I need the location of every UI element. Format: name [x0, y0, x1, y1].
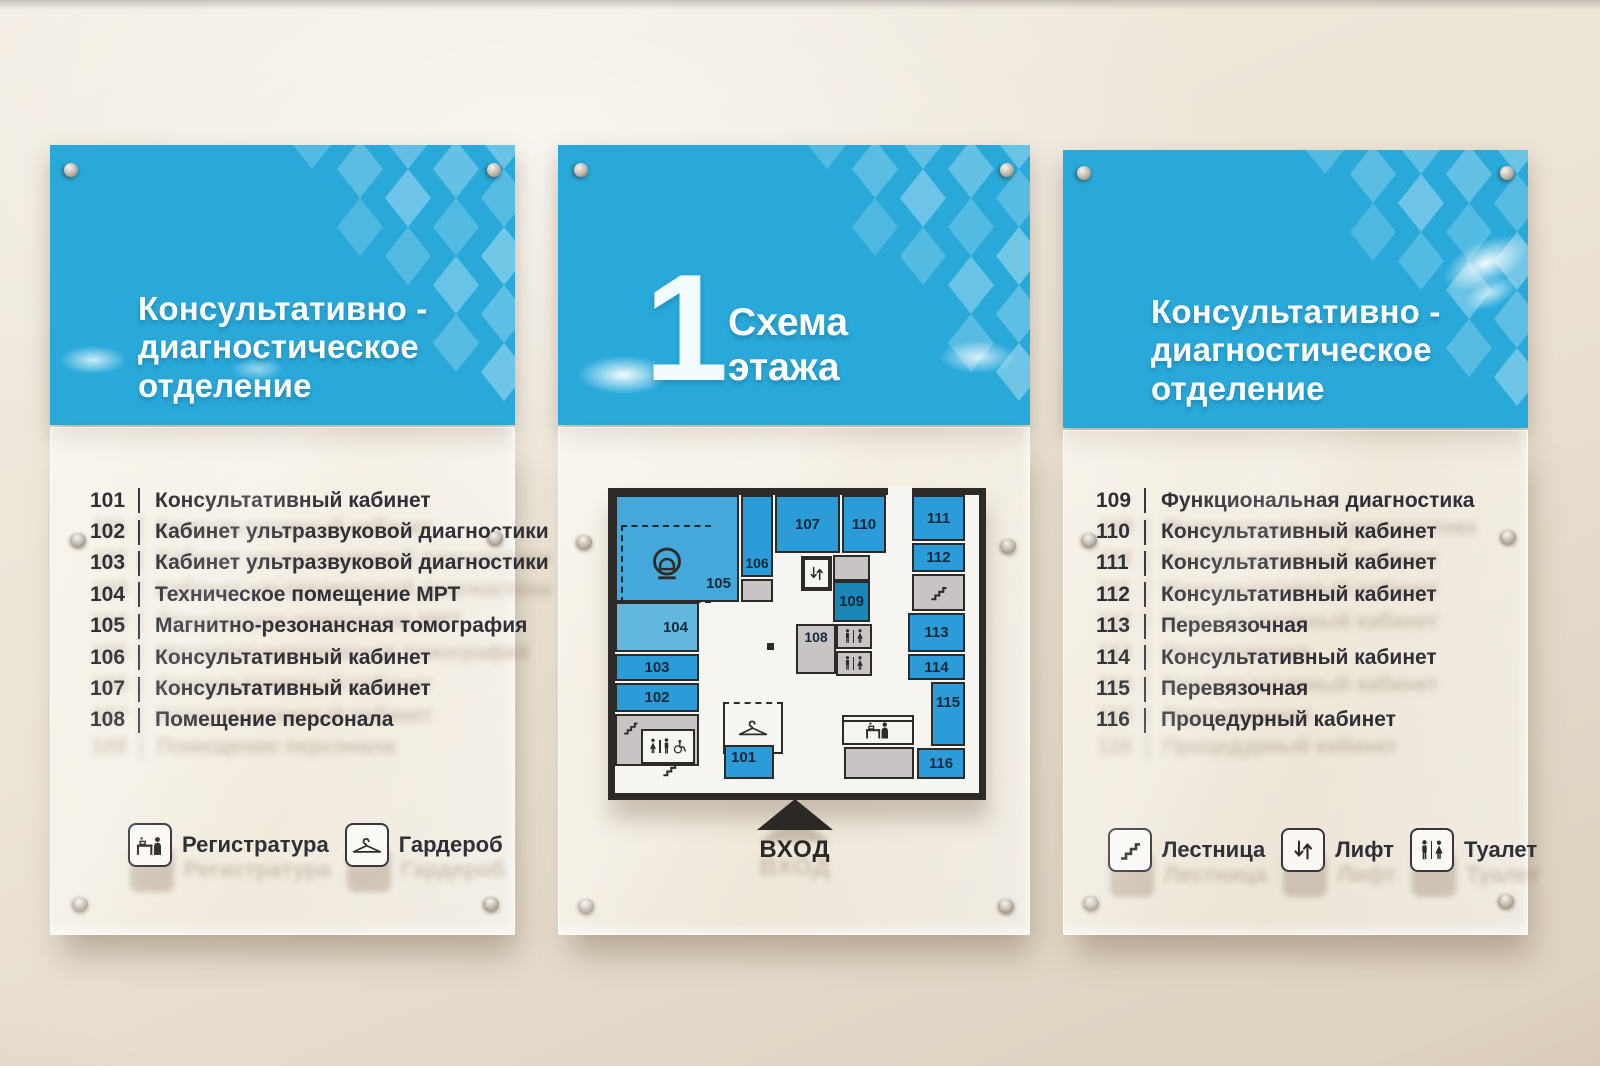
toilet-icon-box: [1410, 828, 1454, 872]
screw: [1002, 539, 1016, 553]
screw: [1502, 530, 1516, 544]
row-divider: [138, 614, 140, 639]
man-icon: [844, 629, 851, 644]
plan-room-label: 111: [927, 510, 950, 527]
woman-icon: [856, 629, 864, 644]
reception-icon-box: [128, 823, 172, 867]
left-legend: Регистратура Гардероб: [128, 823, 519, 867]
room-number: 109: [1096, 489, 1144, 513]
row-divider: [1144, 520, 1146, 545]
plan-room-109: 109: [833, 581, 870, 622]
plan-room-102: 102: [615, 683, 699, 712]
plan-room-label: 105: [706, 575, 731, 592]
room-number: 111: [1096, 551, 1144, 575]
lift-icon: [1291, 838, 1315, 862]
title-line: Схема: [728, 301, 848, 346]
plan-room-101: 101: [724, 745, 774, 779]
plan-room-106: 106: [741, 495, 773, 577]
list-row: 112Консультативный кабинет: [1096, 579, 1474, 610]
room-name: Консультативный кабинет: [1161, 551, 1437, 575]
floor-number: 1: [644, 259, 729, 399]
floor-plan-inner: 105 104 103 102 106 107: [615, 495, 979, 793]
plan-room-111: 111: [912, 495, 965, 541]
title-line: этажа: [728, 346, 848, 391]
reception-icon: [136, 833, 164, 858]
room-name: Магнитно-резонансная томография: [155, 614, 527, 638]
woman-icon: [649, 738, 657, 755]
stairs-icon: [1118, 838, 1142, 862]
mri-icon: [647, 544, 687, 584]
room-name: Кабинет ультразвуковой диагностики: [155, 551, 549, 575]
plan-room-114: 114: [908, 654, 965, 680]
lift-icon-box: [1281, 828, 1325, 872]
list-row: 102Кабинет ультразвуковой диагностики: [90, 516, 549, 547]
list-row: 101Консультативный кабинет: [90, 485, 549, 516]
row-divider: [138, 488, 140, 513]
plan-room-110: 110: [842, 495, 886, 553]
room-number: 115: [1096, 677, 1144, 701]
list-row: 116Процедурный кабинет: [1096, 705, 1474, 736]
room-name: Консультативный кабинет: [155, 646, 431, 670]
screw: [1500, 894, 1514, 908]
man-icon: [1420, 840, 1429, 861]
room-number: 104: [90, 583, 138, 607]
room-number: 108: [90, 708, 138, 732]
list-row: 107Консультативный кабинет: [90, 673, 549, 704]
title-line: Консультативно -: [138, 290, 428, 328]
screw: [485, 897, 499, 911]
plan-room-105: 105: [615, 495, 739, 602]
left-sign-glass: 101Консультативный кабинет 102Кабинет ул…: [50, 427, 515, 935]
plan-toilet: [836, 651, 872, 676]
hanger-icon: [737, 719, 769, 737]
plan-room-label: 101: [731, 749, 756, 766]
room-number: 106: [90, 646, 138, 670]
screw: [489, 531, 503, 545]
room-number: 113: [1096, 614, 1144, 638]
right-sign-glass: 109Функциональная диагностика 110Консуль…: [1063, 430, 1528, 935]
plan-room-label: 113: [924, 624, 948, 641]
plan-service-area: [833, 555, 870, 581]
room-number: 105: [90, 614, 138, 638]
divider: [853, 657, 855, 670]
title-line: отделение: [1151, 370, 1441, 408]
reception-icon: [865, 719, 891, 741]
room-number: 114: [1096, 646, 1144, 670]
room-name: Консультативный кабинет: [155, 677, 431, 701]
legend-label: Лестница: [1162, 837, 1265, 863]
title-line: Консультативно -: [1151, 293, 1441, 331]
plan-room-label: 102: [644, 689, 669, 706]
row-divider: [1144, 708, 1146, 733]
plan-room-115: 115: [931, 682, 965, 746]
divider: [659, 740, 661, 753]
plan-stairwell: [912, 574, 965, 611]
plan-room-107: 107: [775, 495, 840, 553]
divider: [853, 630, 855, 643]
entrance-label: ВХОД: [735, 836, 855, 864]
plan-reception: [842, 715, 914, 745]
plan-pillar: [767, 643, 774, 650]
screw: [1500, 166, 1514, 180]
plan-service-area-sw: [615, 714, 699, 766]
list-row: 111Консультативный кабинет: [1096, 548, 1474, 579]
floor-plan-title: Схема этажа: [728, 301, 848, 391]
plan-elevator: [801, 556, 832, 591]
right-sign-header: Консультативно - диагностическое отделен…: [1063, 150, 1528, 428]
left-sign-title: Консультативно - диагностическое отделен…: [138, 290, 428, 405]
screw: [487, 163, 501, 177]
plan-room-108: 108: [796, 624, 836, 674]
legend-label: Лифт: [1335, 837, 1394, 863]
plan-room-116: 116: [917, 748, 965, 779]
room-name: Помещение персонала: [155, 708, 393, 732]
title-line: диагностическое: [138, 328, 428, 366]
list-row: 108Помещение персонала: [90, 705, 549, 736]
row-divider: [138, 708, 140, 733]
light-glare: [58, 345, 128, 375]
woman-icon: [1434, 840, 1444, 861]
row-divider: [138, 520, 140, 545]
legend-label: Регистратура: [182, 832, 329, 858]
room-name: Консультативный кабинет: [1161, 646, 1437, 670]
entrance-arrow: [757, 799, 833, 830]
row-divider: [1144, 488, 1146, 513]
stairs-icon: [622, 719, 639, 736]
hanger-icon-box: [345, 823, 389, 867]
plan-room-104: 104: [615, 602, 699, 652]
screw: [1000, 163, 1014, 177]
man-icon: [844, 656, 851, 671]
row-divider: [138, 582, 140, 607]
woman-icon: [856, 656, 864, 671]
row-divider: [1144, 614, 1146, 639]
plan-room-112: 112: [912, 543, 965, 572]
screw: [1077, 166, 1091, 180]
mri-partition: [621, 525, 711, 603]
plan-room-103: 103: [615, 654, 699, 681]
plan-service-area: [741, 579, 773, 602]
stairs-icon-box: [1108, 828, 1152, 872]
title-line: отделение: [138, 367, 428, 405]
right-legend: Лестница Лифт Туалет: [1108, 828, 1553, 872]
stairs-icon: [661, 759, 680, 778]
screw: [1083, 533, 1097, 547]
ceiling-shadow: [0, 0, 1600, 10]
plan-room-label: 107: [795, 516, 820, 533]
list-row: 104Техническое помещение МРТ: [90, 579, 549, 610]
plan-room-label: 110: [852, 516, 876, 533]
clinic-wall: { "colors": { "header_blue": "#29a9da", …: [0, 0, 1600, 1066]
row-divider: [1144, 645, 1146, 670]
plan-service-area: [844, 747, 914, 779]
row-divider: [1144, 677, 1146, 702]
row-divider: [138, 677, 140, 702]
room-number: 116: [1096, 708, 1144, 732]
plan-room-label: 109: [839, 593, 864, 610]
list-row: 110Консультативный кабинет: [1096, 516, 1474, 547]
right-sign-title: Консультативно - диагностическое отделен…: [1151, 293, 1441, 408]
room-number: 107: [90, 677, 138, 701]
list-row: 113Перевязочная: [1096, 611, 1474, 642]
divider: [1431, 841, 1433, 859]
room-name: Функциональная диагностика: [1161, 489, 1474, 513]
legend-label: Гардероб: [399, 832, 503, 858]
list-row: 106Консультативный кабинет: [90, 642, 549, 673]
room-number: 101: [90, 489, 138, 513]
man-icon: [663, 738, 670, 755]
hanger-icon: [351, 836, 383, 855]
row-divider: [138, 645, 140, 670]
screw: [64, 163, 78, 177]
wheelchair-icon: [672, 739, 687, 754]
screw: [578, 535, 592, 549]
screw: [1085, 896, 1099, 910]
room-name: Консультативный кабинет: [1161, 583, 1437, 607]
plan-room-label: 104: [663, 619, 688, 636]
list-row: 115Перевязочная: [1096, 673, 1474, 704]
lift-icon: [808, 565, 825, 582]
screw: [1000, 899, 1014, 913]
title-line: диагностическое: [1151, 331, 1441, 369]
plan-room-label: 114: [924, 659, 948, 676]
room-number: 110: [1096, 520, 1144, 544]
right-room-list: 109Функциональная диагностика 110Консуль…: [1096, 485, 1474, 736]
screw: [574, 163, 588, 177]
left-sign-header: Консультативно - диагностическое отделен…: [50, 145, 515, 425]
reception-counter: [844, 720, 912, 722]
legend-label: Туалет: [1464, 837, 1537, 863]
row-divider: [1144, 582, 1146, 607]
screw: [74, 897, 88, 911]
room-number: 103: [90, 551, 138, 575]
left-room-list: 101Консультативный кабинет 102Кабинет ул…: [90, 485, 549, 736]
room-name: Консультативный кабинет: [155, 489, 431, 513]
list-row: 114Консультативный кабинет: [1096, 642, 1474, 673]
plan-room-label: 112: [926, 549, 950, 566]
room-name: Процедурный кабинет: [1161, 708, 1396, 732]
plan-entrance-opening: [783, 772, 816, 788]
floor-plan: 105 104 103 102 106 107: [608, 488, 986, 800]
row-divider: [138, 551, 140, 576]
plan-room-113: 113: [908, 613, 965, 652]
stairs-icon: [929, 583, 948, 602]
plan-room-label: 106: [745, 555, 768, 571]
room-name: Консультативный кабинет: [1161, 520, 1437, 544]
plan-room-label: 108: [804, 629, 827, 645]
screw: [580, 899, 594, 913]
list-row: 109Функциональная диагностика: [1096, 485, 1474, 516]
list-row: 105Магнитно-резонансная томография: [90, 611, 549, 642]
room-name: Техническое помещение МРТ: [155, 583, 460, 607]
list-row: 103Кабинет ультразвуковой диагностики: [90, 548, 549, 579]
plan-room-label: 116: [929, 755, 953, 772]
room-number: 112: [1096, 583, 1144, 607]
room-number: 102: [90, 520, 138, 544]
plan-corridor-opening: [888, 486, 912, 558]
center-sign-header: 1 Схема этажа: [558, 145, 1030, 425]
plan-toilet: [836, 624, 872, 649]
room-name: Перевязочная: [1161, 614, 1308, 638]
row-divider: [1144, 551, 1146, 576]
plan-room-label: 115: [936, 694, 960, 711]
screw: [72, 533, 86, 547]
plan-room-label: 103: [644, 659, 669, 676]
room-name: Перевязочная: [1161, 677, 1308, 701]
